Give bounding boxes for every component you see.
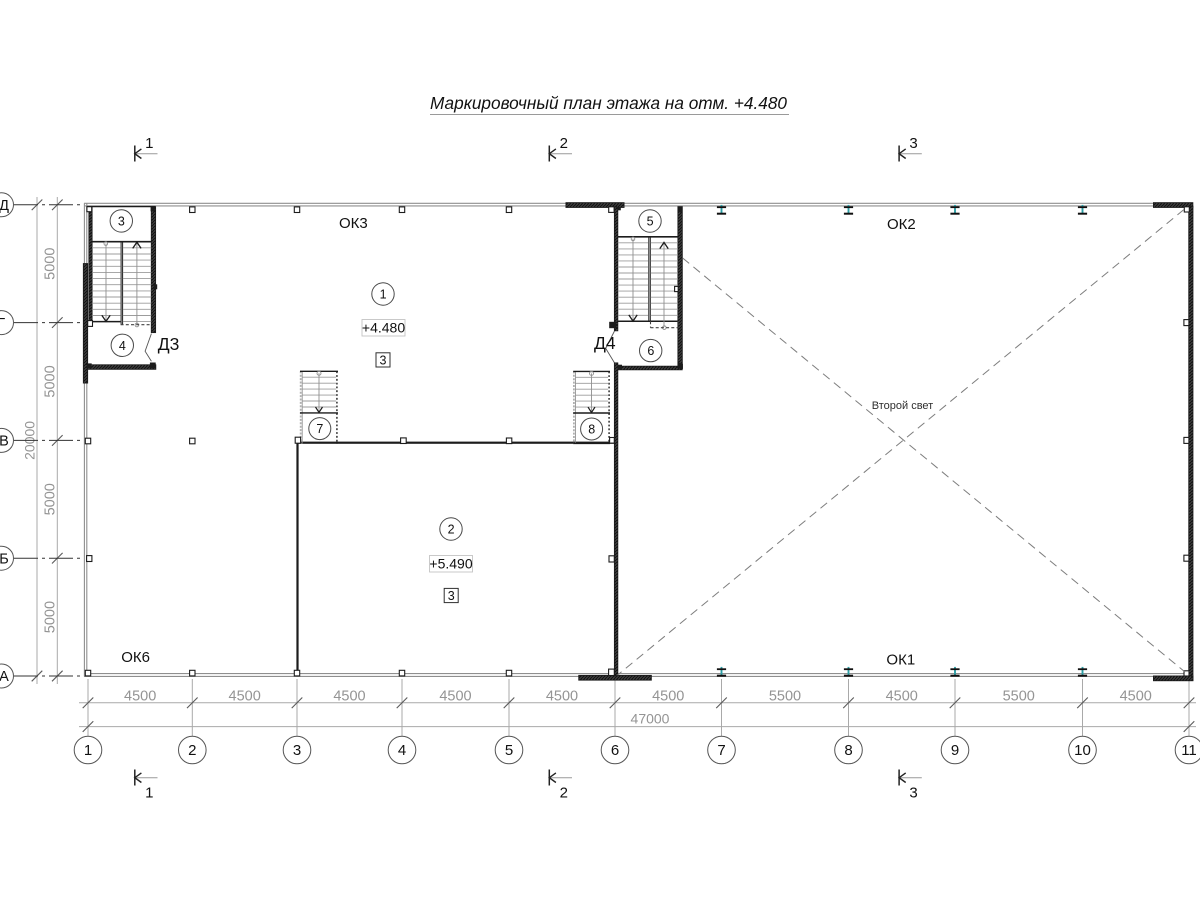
svg-text:ОК2: ОК2	[887, 216, 916, 233]
svg-text:3: 3	[909, 135, 917, 152]
svg-text:3: 3	[293, 742, 301, 759]
svg-text:Г: Г	[0, 316, 5, 332]
svg-text:Второй свет: Второй свет	[872, 400, 933, 412]
svg-text:1: 1	[84, 742, 92, 759]
svg-text:1: 1	[145, 785, 153, 802]
svg-text:4500: 4500	[886, 689, 918, 705]
svg-text:11: 11	[1181, 742, 1197, 759]
svg-text:1: 1	[145, 135, 153, 152]
svg-text:4500: 4500	[229, 689, 261, 705]
svg-text:Д: Д	[0, 198, 9, 214]
svg-text:1: 1	[380, 288, 387, 302]
svg-text:2: 2	[188, 742, 196, 759]
svg-text:4500: 4500	[439, 689, 471, 705]
svg-text:3: 3	[118, 214, 125, 228]
svg-text:5000: 5000	[43, 601, 59, 633]
svg-text:Б: Б	[0, 551, 9, 567]
svg-text:4500: 4500	[333, 689, 365, 705]
svg-text:5500: 5500	[1003, 689, 1035, 705]
svg-text:5500: 5500	[769, 689, 801, 705]
svg-text:3: 3	[448, 589, 455, 603]
svg-text:5000: 5000	[43, 483, 59, 515]
svg-text:3: 3	[380, 353, 387, 367]
svg-text:8: 8	[588, 423, 595, 437]
svg-text:4500: 4500	[1120, 689, 1152, 705]
svg-text:5: 5	[647, 215, 654, 229]
svg-text:7: 7	[316, 422, 323, 436]
svg-text:4500: 4500	[652, 689, 684, 705]
svg-text:2: 2	[560, 785, 568, 802]
svg-text:47000: 47000	[631, 711, 670, 727]
svg-text:9: 9	[951, 742, 959, 759]
svg-text:ОК6: ОК6	[121, 649, 150, 666]
svg-text:3: 3	[909, 785, 917, 802]
svg-text:Маркировочный план этажа на от: Маркировочный план этажа на отм. +4.480	[430, 93, 787, 113]
svg-text:5000: 5000	[43, 248, 59, 280]
svg-text:4500: 4500	[546, 689, 578, 705]
svg-text:6: 6	[611, 742, 619, 759]
svg-text:5: 5	[505, 742, 513, 759]
svg-text:4: 4	[398, 742, 406, 759]
svg-text:2: 2	[448, 523, 455, 537]
svg-text:В: В	[0, 434, 9, 450]
svg-text:ОК3: ОК3	[339, 215, 368, 232]
svg-text:4500: 4500	[124, 689, 156, 705]
svg-text:10: 10	[1074, 742, 1091, 759]
svg-text:6: 6	[647, 344, 654, 358]
svg-text:ОК1: ОК1	[886, 652, 915, 669]
svg-text:+4.480: +4.480	[362, 320, 405, 336]
svg-text:+5.490: +5.490	[429, 556, 472, 572]
svg-text:Д3: Д3	[158, 334, 180, 354]
svg-text:8: 8	[844, 742, 852, 759]
svg-text:А: А	[0, 669, 9, 685]
svg-text:7: 7	[717, 742, 725, 759]
svg-text:Д4: Д4	[594, 333, 616, 353]
svg-text:4: 4	[119, 339, 126, 353]
svg-text:2: 2	[560, 135, 568, 152]
svg-text:5000: 5000	[43, 365, 59, 397]
